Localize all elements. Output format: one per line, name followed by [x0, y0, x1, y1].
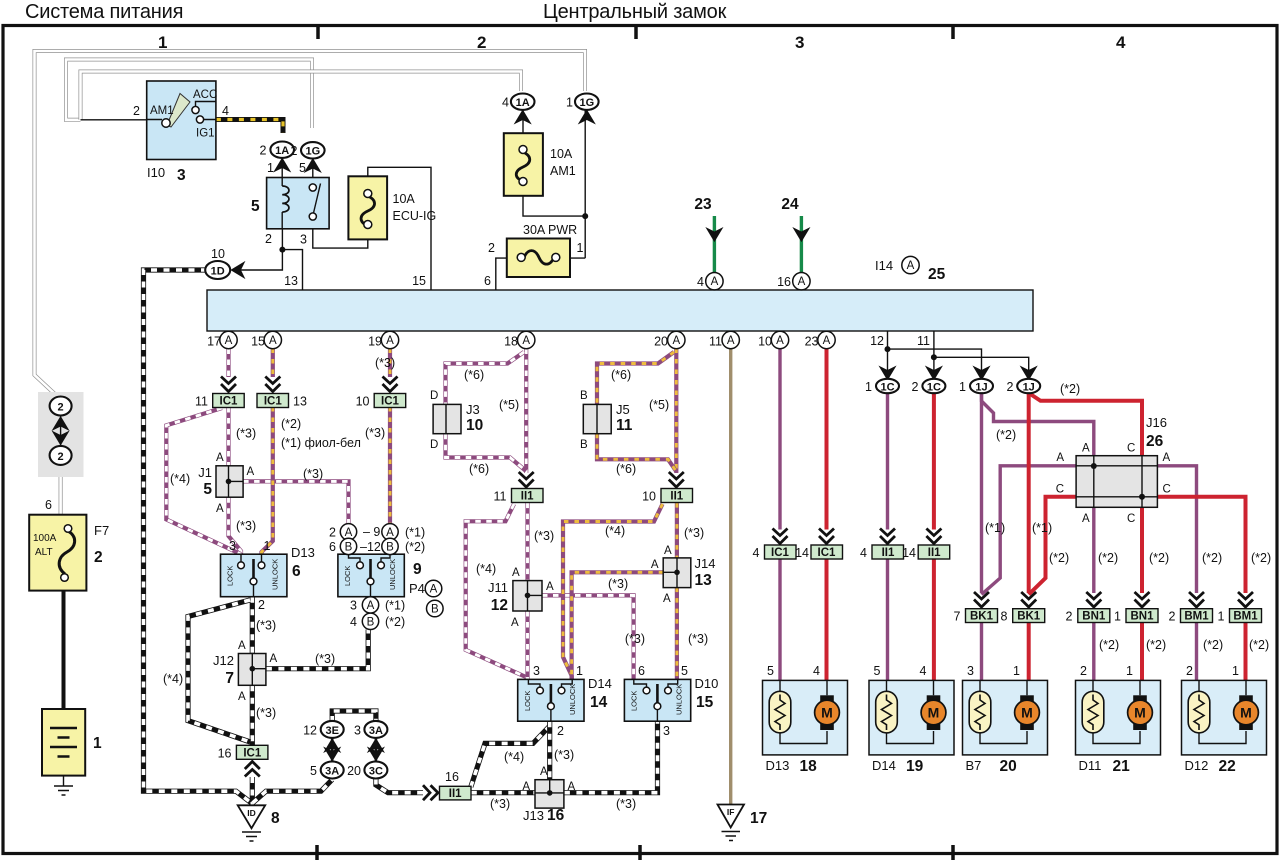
svg-text:14: 14: [590, 694, 608, 711]
svg-text:4: 4: [222, 104, 229, 118]
svg-text:J16: J16: [1146, 415, 1167, 430]
svg-text:A: A: [1163, 452, 1171, 464]
svg-text:2: 2: [557, 724, 564, 738]
svg-text:(*3): (*3): [256, 706, 276, 720]
svg-text:UNLOCK: UNLOCK: [388, 559, 397, 590]
svg-text:10: 10: [466, 417, 483, 434]
svg-text:(*2): (*2): [405, 540, 425, 554]
svg-text:2: 2: [258, 598, 265, 612]
svg-text:6: 6: [638, 664, 645, 678]
svg-text:C: C: [1056, 484, 1064, 496]
svg-text:11: 11: [616, 417, 633, 434]
svg-text:14: 14: [795, 546, 809, 560]
svg-text:C: C: [1127, 443, 1135, 455]
svg-text:10: 10: [758, 335, 772, 349]
svg-text:20: 20: [1000, 758, 1017, 775]
svg-text:LOCK: LOCK: [523, 691, 532, 711]
svg-text:1: 1: [1232, 664, 1239, 678]
svg-text:LOCK: LOCK: [630, 691, 639, 711]
svg-text:30A PWR: 30A PWR: [523, 223, 577, 237]
svg-text:23: 23: [805, 335, 819, 349]
svg-text:Система питания: Система питания: [25, 1, 183, 23]
svg-text:IC1: IC1: [264, 396, 283, 408]
svg-text:13: 13: [293, 395, 307, 409]
svg-text:(*6): (*6): [469, 462, 489, 476]
svg-text:A: A: [511, 617, 519, 629]
svg-text:24: 24: [781, 196, 799, 213]
svg-text:J1: J1: [198, 465, 212, 480]
svg-text:13: 13: [695, 572, 713, 589]
svg-text:1: 1: [267, 161, 274, 175]
svg-text:1: 1: [865, 380, 872, 394]
svg-text:3: 3: [967, 664, 974, 678]
svg-text:10A: 10A: [550, 147, 573, 161]
svg-text:2: 2: [58, 402, 64, 414]
svg-text:(*2): (*2): [1049, 551, 1069, 565]
svg-text:(*3): (*3): [236, 519, 256, 533]
svg-text:–12: –12: [360, 540, 381, 554]
svg-text:15: 15: [412, 274, 426, 288]
svg-text:100A: 100A: [33, 533, 57, 544]
svg-text:1G: 1G: [579, 97, 594, 109]
svg-text:3: 3: [350, 598, 357, 612]
svg-text:(*5): (*5): [499, 398, 519, 412]
svg-text:1G: 1G: [305, 146, 320, 158]
svg-text:A: A: [270, 653, 278, 665]
svg-text:A: A: [345, 527, 353, 539]
svg-text:5: 5: [681, 664, 688, 678]
svg-text:IC1: IC1: [243, 747, 262, 759]
svg-text:IC1: IC1: [381, 396, 400, 408]
svg-text:II1: II1: [928, 547, 941, 559]
svg-text:D: D: [430, 390, 438, 402]
svg-text:7: 7: [954, 610, 961, 624]
svg-text:BN1: BN1: [1130, 611, 1154, 623]
svg-text:BM1: BM1: [1184, 611, 1209, 623]
svg-text:10: 10: [642, 490, 656, 504]
svg-text:ECU-IG: ECU-IG: [393, 209, 437, 223]
svg-text:16: 16: [777, 275, 791, 289]
svg-text:8: 8: [1001, 610, 1008, 624]
svg-text:26: 26: [1146, 433, 1164, 450]
svg-text:2: 2: [1066, 610, 1073, 624]
svg-text:4: 4: [753, 546, 760, 560]
svg-text:IG1: IG1: [196, 128, 215, 140]
svg-text:1: 1: [93, 735, 102, 752]
svg-text:ACC: ACC: [193, 89, 217, 101]
svg-text:D14: D14: [872, 758, 896, 773]
svg-text:A: A: [1082, 443, 1090, 455]
svg-text:3: 3: [300, 233, 307, 247]
svg-text:2: 2: [912, 380, 919, 394]
svg-text:A: A: [663, 593, 671, 605]
svg-text:ALT: ALT: [35, 547, 53, 558]
svg-text:UNLOCK: UNLOCK: [675, 684, 684, 715]
svg-text:A: A: [238, 640, 246, 652]
svg-text:12: 12: [870, 334, 884, 348]
svg-text:6: 6: [292, 563, 301, 580]
svg-text:A: A: [430, 584, 438, 596]
svg-text:2: 2: [1080, 664, 1087, 678]
svg-text:3A: 3A: [325, 766, 339, 778]
svg-text:1: 1: [1013, 664, 1020, 678]
svg-text:2: 2: [1186, 664, 1193, 678]
svg-text:3: 3: [533, 664, 540, 678]
svg-text:4: 4: [350, 615, 357, 629]
svg-text:M: M: [928, 705, 940, 721]
svg-text:1J: 1J: [1023, 382, 1035, 394]
svg-text:M: M: [1240, 705, 1252, 721]
svg-text:(*3): (*3): [625, 632, 645, 646]
svg-text:(*3): (*3): [303, 467, 323, 481]
svg-text:C: C: [1163, 484, 1171, 496]
svg-text:D13: D13: [291, 545, 315, 560]
svg-text:D10: D10: [695, 676, 719, 691]
svg-text:(*4): (*4): [476, 562, 496, 576]
svg-text:2: 2: [1169, 610, 1176, 624]
svg-text:1: 1: [1114, 610, 1121, 624]
svg-text:1: 1: [577, 241, 584, 255]
svg-text:16: 16: [445, 770, 459, 784]
svg-text:I14: I14: [875, 258, 893, 273]
svg-text:2: 2: [58, 451, 64, 463]
svg-text:15: 15: [251, 335, 265, 349]
svg-text:11: 11: [709, 335, 722, 349]
svg-text:5: 5: [299, 161, 306, 175]
svg-text:C: C: [1127, 513, 1135, 525]
svg-text:3: 3: [354, 724, 361, 738]
svg-text:12: 12: [303, 724, 317, 738]
svg-text:6: 6: [329, 540, 336, 554]
svg-text:B: B: [431, 604, 439, 616]
svg-text:B: B: [580, 390, 588, 402]
svg-text:(*6): (*6): [616, 462, 636, 476]
svg-text:21: 21: [1113, 758, 1131, 775]
svg-text:5: 5: [251, 198, 260, 215]
svg-text:(*3): (*3): [684, 526, 704, 540]
svg-text:4: 4: [502, 96, 509, 110]
svg-text:15: 15: [696, 694, 714, 711]
svg-text:(*3): (*3): [256, 619, 276, 633]
svg-text:(*2): (*2): [385, 615, 405, 629]
svg-text:J12: J12: [213, 653, 234, 668]
svg-text:(*1): (*1): [1032, 521, 1052, 535]
svg-text:16: 16: [218, 747, 232, 761]
svg-text:D13: D13: [766, 758, 790, 773]
svg-text:5: 5: [767, 664, 774, 678]
svg-text:A: A: [238, 691, 246, 703]
svg-text:10: 10: [356, 395, 370, 409]
svg-text:1J: 1J: [975, 382, 987, 394]
svg-text:A: A: [664, 545, 672, 557]
svg-text:9: 9: [413, 561, 422, 578]
svg-text:(*2): (*2): [1202, 551, 1222, 565]
svg-text:1A: 1A: [516, 97, 530, 109]
svg-text:(*4): (*4): [163, 672, 183, 686]
svg-text:20: 20: [654, 335, 668, 349]
svg-text:2: 2: [488, 241, 495, 255]
svg-text:II1: II1: [670, 491, 683, 503]
svg-text:A: A: [1082, 513, 1090, 525]
svg-text:(*3): (*3): [608, 577, 628, 591]
svg-text:F7: F7: [94, 523, 109, 538]
svg-text:(*1): (*1): [985, 521, 1005, 535]
svg-text:J11: J11: [488, 580, 508, 595]
svg-text:AM1: AM1: [550, 164, 576, 178]
svg-text:(*2): (*2): [1203, 638, 1223, 652]
svg-text:3C: 3C: [369, 766, 383, 778]
svg-text:3: 3: [177, 167, 186, 184]
svg-text:6: 6: [484, 274, 491, 288]
svg-text:(*3): (*3): [365, 426, 385, 440]
svg-text:B7: B7: [966, 758, 982, 773]
svg-text:(*3): (*3): [688, 632, 708, 646]
svg-text:IC1: IC1: [818, 547, 837, 559]
svg-text:1C: 1C: [880, 382, 894, 394]
svg-text:1A: 1A: [275, 145, 289, 157]
svg-text:4: 4: [920, 664, 927, 678]
svg-text:J3: J3: [466, 402, 480, 417]
svg-text:4: 4: [697, 275, 704, 289]
svg-text:A: A: [216, 503, 224, 515]
svg-text:14: 14: [902, 546, 916, 560]
svg-text:1: 1: [264, 539, 271, 553]
svg-text:2: 2: [133, 104, 140, 118]
svg-text:(*1) фиол-бел: (*1) фиол-бел: [281, 436, 361, 450]
svg-text:13: 13: [284, 274, 298, 288]
svg-text:(*2): (*2): [1098, 551, 1118, 565]
svg-text:A: A: [522, 781, 530, 793]
svg-text:(*3): (*3): [490, 797, 510, 811]
svg-text:D14: D14: [588, 676, 612, 691]
svg-text:D12: D12: [1185, 758, 1209, 773]
svg-text:2: 2: [265, 232, 272, 246]
svg-text:BK1: BK1: [1017, 611, 1041, 623]
svg-text:(*3): (*3): [315, 652, 335, 666]
svg-text:(*2): (*2): [996, 428, 1016, 442]
svg-text:18: 18: [800, 758, 818, 775]
svg-text:M: M: [1021, 705, 1033, 721]
svg-text:M: M: [821, 705, 833, 721]
svg-text:(*1): (*1): [385, 598, 405, 612]
svg-text:– 9: – 9: [363, 525, 380, 539]
svg-text:A: A: [540, 766, 548, 778]
svg-text:11: 11: [494, 490, 507, 504]
svg-text:(*3): (*3): [236, 427, 256, 441]
svg-text:A: A: [568, 781, 576, 793]
svg-text:1: 1: [566, 96, 573, 110]
svg-text:LOCK: LOCK: [226, 566, 235, 586]
svg-text:I10: I10: [147, 165, 165, 180]
svg-text:3A: 3A: [369, 725, 383, 737]
svg-text:(*2): (*2): [1149, 551, 1169, 565]
svg-text:25: 25: [928, 266, 946, 283]
svg-text:2: 2: [291, 144, 298, 158]
svg-text:(*4): (*4): [605, 524, 625, 538]
svg-text:10A: 10A: [393, 192, 416, 206]
svg-text:3E: 3E: [325, 725, 338, 737]
svg-text:UNLOCK: UNLOCK: [271, 559, 280, 590]
svg-text:A: A: [546, 581, 554, 593]
svg-text:II1: II1: [882, 547, 895, 559]
svg-text:D11: D11: [1079, 758, 1102, 773]
svg-text:4: 4: [813, 664, 820, 678]
svg-text:(*2): (*2): [281, 417, 301, 431]
svg-text:1: 1: [576, 664, 583, 678]
svg-text:B: B: [367, 616, 375, 628]
svg-text:4: 4: [860, 546, 867, 560]
svg-text:II1: II1: [449, 788, 462, 800]
svg-text:1C: 1C: [927, 382, 941, 394]
svg-text:Центральный замок: Центральный замок: [543, 1, 727, 23]
svg-text:2: 2: [329, 526, 336, 540]
svg-text:(*2): (*2): [1251, 551, 1271, 565]
svg-text:B: B: [580, 439, 588, 451]
svg-text:(*5): (*5): [649, 398, 669, 412]
svg-text:12: 12: [491, 597, 508, 614]
svg-text:(*6): (*6): [611, 368, 631, 382]
svg-text:A: A: [367, 600, 375, 612]
svg-text:17: 17: [207, 335, 221, 349]
svg-text:A: A: [651, 559, 659, 571]
svg-text:II1: II1: [521, 491, 534, 503]
svg-text:18: 18: [504, 335, 518, 349]
svg-text:J14: J14: [695, 556, 716, 571]
svg-text:BN1: BN1: [1082, 611, 1106, 623]
svg-text:23: 23: [694, 196, 712, 213]
svg-text:(*3): (*3): [534, 529, 554, 543]
svg-text:A: A: [247, 466, 255, 478]
svg-text:IC1: IC1: [771, 547, 790, 559]
svg-text:ID: ID: [247, 808, 256, 818]
svg-text:19: 19: [368, 335, 382, 349]
svg-text:1: 1: [1218, 610, 1225, 624]
svg-text:LOCK: LOCK: [343, 566, 352, 586]
svg-text:A: A: [216, 452, 224, 464]
svg-text:11: 11: [917, 334, 930, 348]
svg-text:(*3): (*3): [554, 748, 574, 762]
svg-text:3: 3: [795, 33, 804, 52]
svg-text:16: 16: [547, 807, 565, 824]
svg-text:8: 8: [271, 810, 280, 827]
svg-text:D: D: [430, 439, 438, 451]
svg-text:5: 5: [203, 481, 212, 498]
svg-text:J5: J5: [616, 402, 630, 417]
svg-text:(*2): (*2): [1099, 638, 1119, 652]
svg-text:A: A: [512, 567, 520, 579]
svg-text:22: 22: [1219, 758, 1236, 775]
svg-text:A: A: [386, 527, 394, 539]
svg-text:UNLOCK: UNLOCK: [568, 684, 577, 715]
svg-text:11: 11: [195, 395, 208, 409]
svg-text:M: M: [1134, 705, 1146, 721]
svg-text:19: 19: [906, 758, 924, 775]
svg-text:1: 1: [959, 380, 966, 394]
svg-text:2: 2: [94, 549, 103, 566]
svg-text:1: 1: [1126, 664, 1133, 678]
svg-text:1D: 1D: [211, 266, 225, 278]
svg-text:3: 3: [229, 539, 236, 553]
svg-text:5: 5: [310, 764, 317, 778]
svg-text:5: 5: [874, 664, 881, 678]
svg-text:J13: J13: [523, 808, 544, 823]
svg-text:7: 7: [225, 670, 234, 687]
svg-text:(*1): (*1): [405, 526, 425, 540]
svg-text:(*2): (*2): [1249, 638, 1269, 652]
svg-text:(*6): (*6): [464, 368, 484, 382]
svg-text:17: 17: [750, 810, 767, 827]
svg-text:IF: IF: [727, 807, 735, 817]
svg-text:(*3): (*3): [375, 356, 395, 370]
svg-text:B: B: [386, 541, 394, 553]
svg-text:AM1: AM1: [150, 105, 174, 117]
svg-text:B: B: [345, 541, 353, 553]
svg-text:(*2): (*2): [1060, 382, 1080, 396]
svg-text:BK1: BK1: [970, 611, 994, 623]
svg-text:IC1: IC1: [220, 396, 239, 408]
svg-text:20: 20: [347, 764, 361, 778]
svg-text:4: 4: [1116, 33, 1126, 52]
svg-text:(*2): (*2): [1146, 638, 1166, 652]
svg-text:(*4): (*4): [504, 750, 524, 764]
svg-text:2: 2: [1007, 380, 1014, 394]
svg-text:(*4): (*4): [170, 472, 190, 486]
svg-text:(*3): (*3): [616, 797, 636, 811]
svg-text:2: 2: [260, 144, 267, 158]
svg-text:6: 6: [45, 498, 52, 512]
svg-text:A: A: [1056, 452, 1064, 464]
svg-text:P4: P4: [409, 581, 425, 596]
svg-text:BM1: BM1: [1233, 611, 1258, 623]
svg-text:3: 3: [663, 724, 670, 738]
svg-text:10: 10: [211, 247, 225, 261]
